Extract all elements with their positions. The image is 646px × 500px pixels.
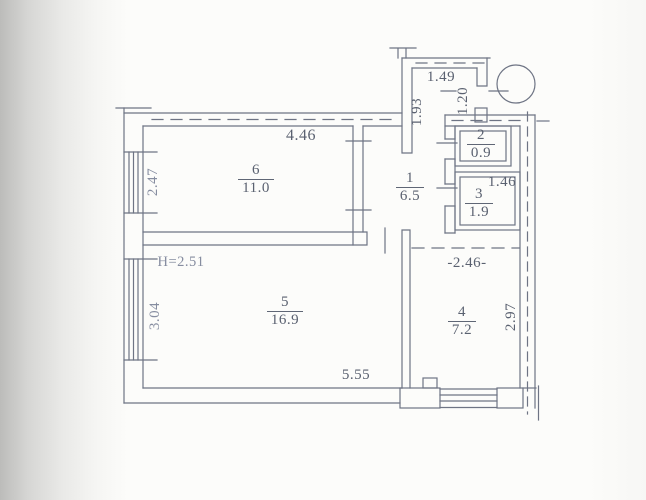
room-1-number: 1 <box>404 170 416 187</box>
room-4-area: 7.2 <box>448 321 476 339</box>
dim-room3-width: 1.46 <box>482 173 522 191</box>
room4-balcony-window <box>400 378 539 420</box>
ceiling-height-note: H=2.51 <box>150 253 212 271</box>
dim-vestibule-depth: 1.93 <box>408 95 426 129</box>
room-4-number: 4 <box>456 304 468 321</box>
room-6-number: 6 <box>250 162 262 179</box>
window-glazing-hatch <box>129 152 138 360</box>
room-2-number: 2 <box>475 127 487 144</box>
dim-room5-window: 3.04 <box>146 299 164 333</box>
dim-room6-window: 2.47 <box>144 165 162 199</box>
room-2-label: 2 0.9 <box>466 127 496 162</box>
room-5-area: 16.9 <box>267 311 303 329</box>
partition-room6-hall <box>353 126 363 245</box>
room-6-label: 6 11.0 <box>236 162 276 197</box>
room-1-label: 1 6.5 <box>392 170 428 205</box>
bottom-exterior-wall <box>124 388 402 403</box>
partition-room5-room4 <box>402 230 410 388</box>
room-3-area: 1.9 <box>465 203 493 221</box>
floorplan-drawing <box>0 0 646 500</box>
top-exterior-wall <box>124 113 402 126</box>
dim-room5-width: 5.55 <box>334 366 378 384</box>
room-6-area: 11.0 <box>238 179 274 197</box>
room-4-label: 4 7.2 <box>447 304 477 339</box>
dim-entry-niche: 1.20 <box>454 84 472 118</box>
room-5-number: 5 <box>279 294 291 311</box>
room-1-area: 6.5 <box>396 187 424 205</box>
room-2-area: 0.9 <box>467 144 495 162</box>
partition-room6-room5 <box>143 232 367 245</box>
dim-room4-depth: 2.97 <box>502 300 520 334</box>
scanned-floorplan-page: 6 11.0 1 6.5 2 0.9 3 1.9 5 16.9 4 7.2 4.… <box>0 0 646 500</box>
dim-room4-opening: -2.46- <box>441 254 493 272</box>
room-3-label: 3 1.9 <box>464 186 494 221</box>
room-5-label: 5 16.9 <box>266 294 304 329</box>
dim-room6-width: 4.46 <box>278 127 324 145</box>
entry-circle-symbol <box>497 65 535 103</box>
